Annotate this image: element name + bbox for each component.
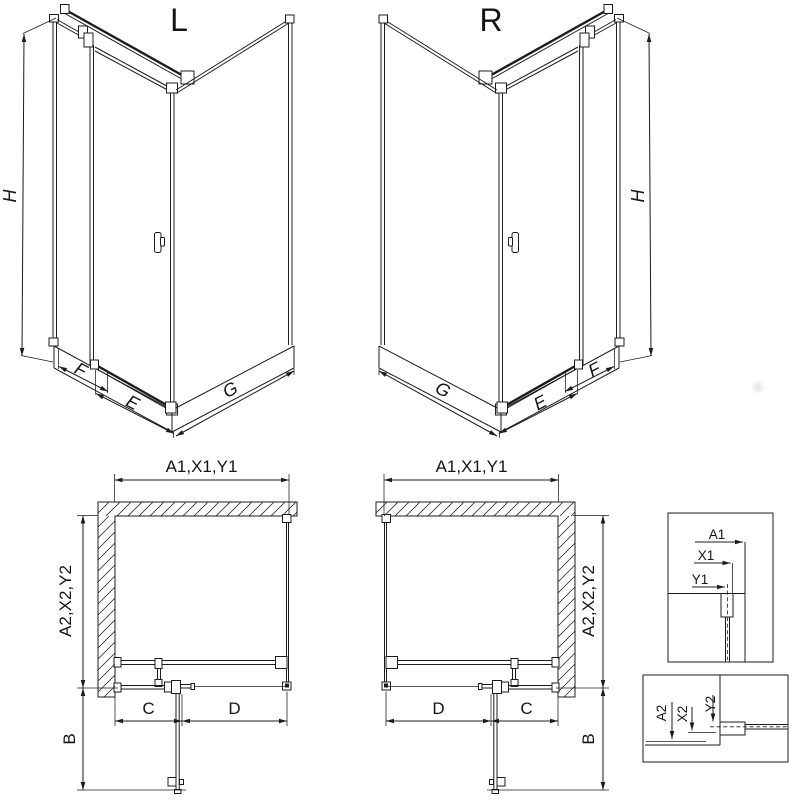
dim-label-e-left: E <box>123 391 144 415</box>
dim-wall <box>176 369 294 437</box>
dim-label-h-right: H <box>628 189 648 203</box>
side-wall-glass <box>176 15 294 345</box>
dim-label-g-right: G <box>432 378 454 402</box>
dim-height <box>20 18 56 362</box>
hinge-profile <box>90 43 94 368</box>
plan-view-left-geometry <box>98 474 297 794</box>
door-handle <box>155 233 165 253</box>
wall-hatch-right-plan-side <box>558 516 575 697</box>
plan-right-dim-top-label: A1,X1,Y1 <box>436 457 508 476</box>
detail-x1-label: X1 <box>698 548 715 563</box>
dim-label-e-right: E <box>530 391 551 415</box>
wall-profile-section <box>721 594 733 618</box>
plan-left-dim-top-label: A1,X1,Y1 <box>166 457 238 476</box>
dim-label-f-left: F <box>71 358 91 381</box>
wall-hatch-left-plan-top <box>98 502 297 516</box>
corner-post <box>167 83 178 415</box>
wall-hatch-left-plan-side <box>98 516 115 697</box>
plan-view-right-geometry <box>376 474 575 794</box>
plan-left-dim-door-label: D <box>228 699 240 718</box>
detail-y2-label: Y2 <box>703 696 718 713</box>
plan-right-dim-door-label: D <box>432 699 444 718</box>
plan-left-dim-fixed-label: C <box>142 699 154 718</box>
wall-profile-section <box>720 722 745 735</box>
detail-a1-label: A1 <box>709 527 726 542</box>
plan-left-dim-side <box>77 516 186 791</box>
plan-right-dim-depth-label: B <box>579 733 598 744</box>
shower-enclosure-technical-drawing: L R H F E G H F E G A1,X1,Y1 A2,X2,Y2 B … <box>0 0 800 800</box>
plan-right-dim-side-label: A2,X2,Y2 <box>579 565 598 637</box>
dim-label-h-left: H <box>0 189 20 203</box>
detail-a2-label: A2 <box>654 705 669 722</box>
detail-x2-label: X2 <box>675 706 690 723</box>
detail-y1-label: Y1 <box>692 572 709 587</box>
plan-left-dim-depth-label: B <box>60 733 79 744</box>
plan-support-bar <box>114 657 287 687</box>
label-variant-right: R <box>479 2 502 38</box>
plan-door-open <box>165 681 287 794</box>
plan-right-dim-side <box>487 516 609 791</box>
iso-view-right-geometry <box>379 5 653 439</box>
wall-outline <box>98 502 297 697</box>
plan-right-dim-fixed-label: C <box>520 699 532 718</box>
dim-label-g-left: G <box>219 378 241 402</box>
iso-view-left-geometry <box>20 5 294 439</box>
door-glass <box>95 47 171 92</box>
wall-hatch-right-plan-top <box>376 502 575 516</box>
watermark-dot <box>752 381 764 393</box>
plan-dim-cd <box>115 692 287 727</box>
plan-left-dim-side-label: A2,X2,Y2 <box>56 565 75 637</box>
label-variant-left: L <box>170 2 188 38</box>
side-panel-wall-profile <box>49 15 93 347</box>
